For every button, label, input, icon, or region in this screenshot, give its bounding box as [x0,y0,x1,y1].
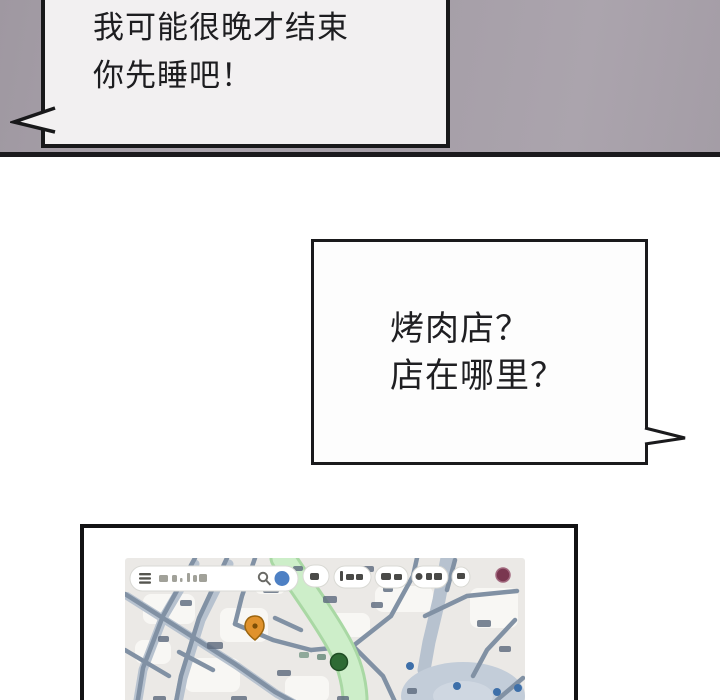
bubble-tail-right [644,425,690,451]
route-blob [317,654,326,660]
hamburger-menu-icon [139,573,151,584]
account-avatar-dot [275,571,290,586]
speech-bubble-top: 我可能很晚才结束 你先睡吧！ [41,0,450,148]
green-circle-marker [331,654,348,671]
bubble-tail-left [10,104,56,138]
filter-chip [375,566,408,588]
top-panel: 我可能很晚才结束 你先睡吧！ [0,0,720,157]
question-line-2: 店在哪里？ [390,353,565,400]
route-blob [299,652,309,658]
speech-line-1: 我可能很晚才结束 [93,4,438,52]
map-photo-panel [80,524,578,700]
maroon-poi-dot [496,568,510,582]
comic-page: 我可能很晚才结束 你先睡吧！ 烤肉店？ 店在哪里？ [0,0,720,700]
map-screenshot [125,558,525,700]
speech-bubble-question: 烤肉店？ 店在哪里？ [311,239,648,465]
question-text: 烤肉店？ 店在哪里？ [390,306,565,400]
map-search-bar [130,566,298,591]
speech-line-2: 你先睡吧！ [93,52,438,100]
map-canvas [125,558,525,700]
question-line-1: 烤肉店？ [390,306,565,353]
